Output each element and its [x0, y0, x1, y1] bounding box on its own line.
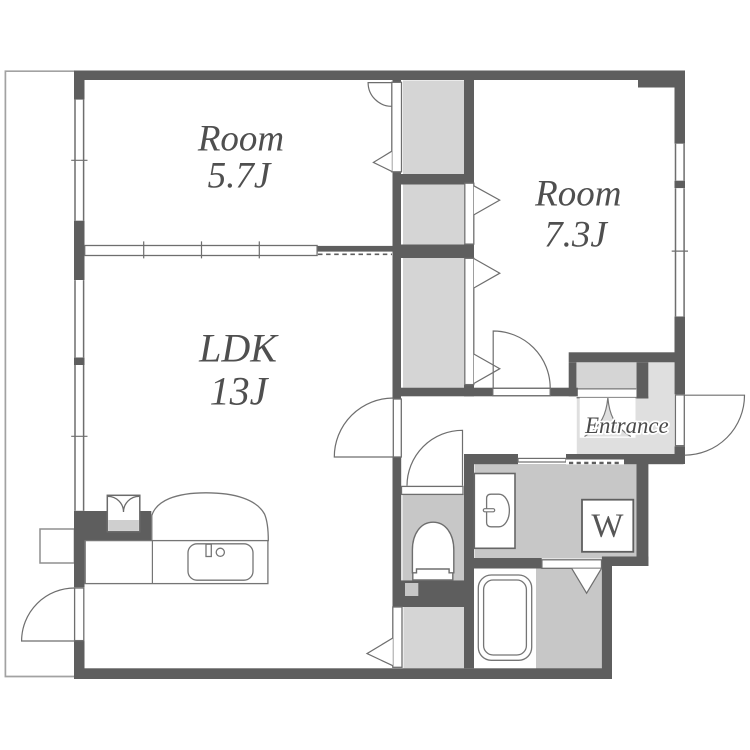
- svg-text:LDK: LDK: [198, 326, 279, 371]
- svg-text:5.7J: 5.7J: [208, 156, 272, 197]
- svg-text:Entrance: Entrance: [584, 413, 669, 438]
- svg-text:13J: 13J: [210, 369, 270, 414]
- svg-text:Room: Room: [534, 173, 621, 214]
- svg-text:W: W: [591, 508, 624, 545]
- svg-text:Room: Room: [197, 119, 284, 160]
- svg-text:7.3J: 7.3J: [544, 215, 608, 256]
